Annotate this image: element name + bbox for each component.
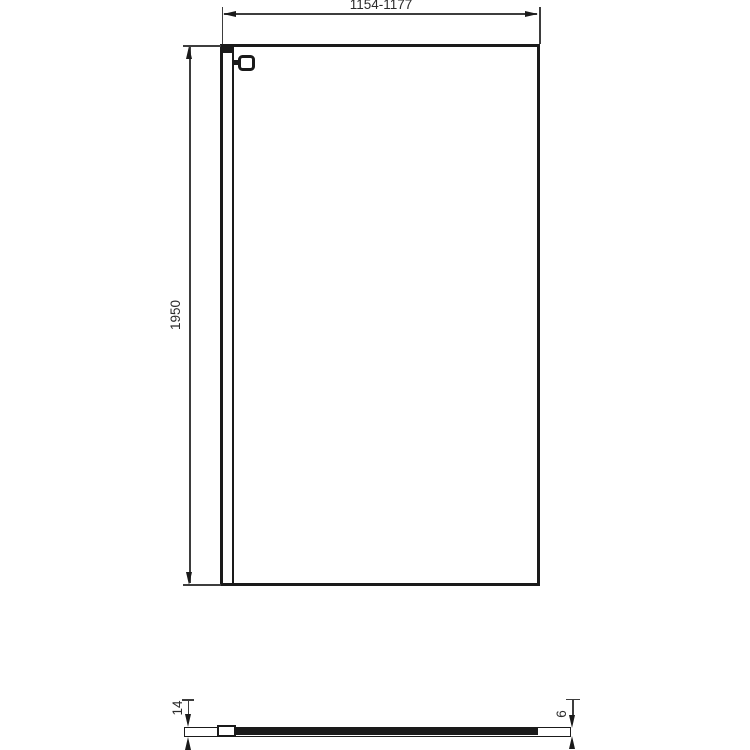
profile-depth-leader-top xyxy=(188,700,189,715)
height-arrow-top-icon xyxy=(186,46,192,59)
width-dimension-line xyxy=(224,13,537,14)
height-dimension-label: 1950 xyxy=(169,285,183,345)
wall-profile-cap xyxy=(222,45,233,53)
height-dimension-line xyxy=(189,47,190,583)
glass-thickness-label: 6 xyxy=(555,699,569,729)
profile-depth-label: 14 xyxy=(171,688,185,728)
glass-panel-outline xyxy=(220,44,540,586)
plan-glass-body xyxy=(235,728,538,735)
width-dimension-label: 1154-1177 xyxy=(300,0,462,12)
plan-wall-profile-section xyxy=(217,725,236,737)
height-arrow-bottom-icon xyxy=(186,572,192,585)
technical-drawing-canvas: 1154-1177 1950 14 6 xyxy=(0,0,750,750)
profile-depth-arrow-up-icon xyxy=(185,737,191,750)
wall-profile-edge xyxy=(232,47,234,583)
profile-depth-arrow-down-icon xyxy=(185,714,191,727)
glass-thickness-arrow-down-icon xyxy=(569,715,575,728)
width-arrow-right-icon xyxy=(525,11,538,17)
mounting-clip-icon xyxy=(238,55,255,71)
width-extension-line-right xyxy=(539,7,540,44)
glass-thickness-leader-top xyxy=(572,700,573,716)
glass-thickness-arrow-up-icon xyxy=(569,736,575,749)
width-arrow-left-icon xyxy=(223,11,236,17)
